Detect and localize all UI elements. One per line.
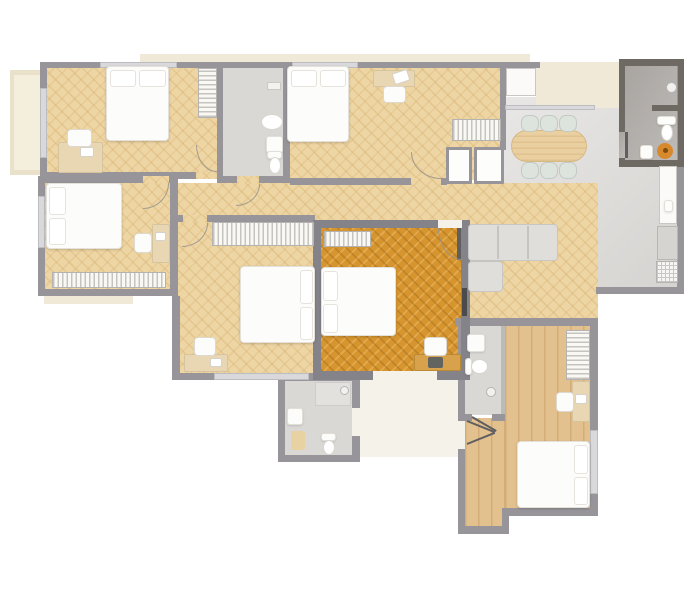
sofa-seam-3: [470, 260, 501, 262]
pillow-leftmiddle-1: [49, 187, 66, 215]
kitchen-sink: [664, 200, 673, 212]
kitchen-grate: [656, 261, 678, 283]
pillow-bottomright-2: [574, 477, 588, 505]
mat-bathbottom: [291, 431, 305, 450]
item-desk-leftmiddle: [155, 232, 166, 241]
wardrobe-highlighted: [324, 231, 371, 247]
door-gap-bath-topmiddle: [237, 176, 259, 183]
door-gap-centerleft-bedroom: [183, 215, 207, 222]
door-gap-bathbottom: [352, 408, 360, 436]
window-left-a: [40, 88, 47, 158]
wall-bathtr-partition: [652, 105, 678, 111]
sofa-seam-1: [497, 226, 499, 259]
paper-topleft: [80, 147, 94, 157]
door-gap-wing: [458, 421, 465, 449]
window-dark-highlighted: [462, 288, 467, 316]
window-right-wing: [590, 430, 598, 494]
kitchen-appliance: [657, 226, 678, 260]
pillow-highlighted-1: [323, 271, 338, 301]
toilet-bowl-ensuite: [471, 359, 488, 374]
window-kitchen-line: [505, 105, 595, 110]
wardrobe-bottomright: [566, 330, 590, 380]
wall-living-bottomright: [596, 287, 684, 294]
bedroom-bottomright-entry-floor: [465, 418, 505, 526]
hallway-floor: [356, 377, 462, 457]
dining-chair-2: [540, 115, 558, 132]
pillow-topleft-2: [139, 70, 166, 87]
pillow-centerleft-2: [300, 307, 313, 340]
chair-topmiddle: [383, 86, 406, 103]
pillow-centerleft-1: [300, 270, 313, 304]
door-gap-leftmiddle-bedroom: [143, 176, 169, 183]
pillow-leftmiddle-2: [49, 218, 66, 245]
sofa-chaise: [468, 261, 503, 292]
wall-bathtr-right: [678, 59, 684, 167]
item-desk-bottomright: [575, 394, 587, 404]
floorplan-canvas: [0, 0, 692, 600]
dining-chair-3: [559, 115, 577, 132]
desk-leftmiddle: [152, 224, 170, 263]
chair-highlighted: [424, 337, 447, 356]
door-leaf-bathtr: [625, 132, 628, 158]
laptop-highlighted: [428, 357, 443, 368]
dining-chair-4: [521, 162, 539, 179]
sofa-seam-2: [527, 226, 529, 259]
window-left-d: [38, 196, 45, 248]
shower-icon-ensuite: [486, 387, 496, 397]
closet-two: [474, 147, 504, 184]
pillow-highlighted-2: [323, 304, 338, 333]
floor-square-bathtr: [640, 145, 653, 159]
wall-wing-bottomright: [504, 508, 598, 516]
wall-ensuite-door-stub-right: [492, 414, 505, 421]
door-gap-topmiddle-bedroom: [411, 178, 441, 185]
wall-leftmiddle-right: [170, 176, 178, 296]
wall-wing-top: [455, 318, 598, 326]
chair-topleft: [67, 129, 92, 147]
wall-ensuite-door-stub-left: [458, 414, 472, 421]
shower-icon-bathtr: [666, 82, 677, 93]
pillow-topmiddle-2: [320, 70, 346, 87]
sink-bathbottom: [287, 408, 303, 425]
wardrobe-centerleft: [212, 222, 314, 246]
dining-chair-5: [540, 162, 558, 179]
toilet-bowl-bath-top: [269, 157, 281, 174]
wardrobe-topleft: [198, 68, 217, 118]
pillow-topleft-1: [110, 70, 136, 87]
shower-icon-bathbottom: [340, 386, 349, 395]
door-gap-topleft-bedroom: [196, 172, 217, 179]
window-bottom-e: [214, 373, 309, 380]
dining-chair-1: [521, 115, 539, 132]
wardrobe-topmiddle: [452, 119, 501, 141]
wall-centerleft-left: [172, 296, 180, 380]
stool-dot-bathtr: [663, 148, 668, 153]
door-gap-highlighted-top: [438, 220, 462, 228]
dining-chair-6: [559, 162, 577, 179]
entry-cream-strip: [536, 62, 622, 108]
wall-wing-bottomleft: [458, 526, 508, 534]
wardrobe-leftmiddle: [52, 272, 166, 288]
item-desk-centerleft: [210, 358, 222, 367]
wall-ensuite-right: [501, 326, 505, 418]
door-gap-highlighted-bottom: [373, 371, 437, 380]
balcony-left-floor: [14, 75, 42, 170]
pillow-topmiddle-1: [291, 70, 317, 87]
toilet-bowl-bathbottom: [323, 440, 335, 455]
sink-bath-top: [261, 114, 283, 130]
kitchen-counter: [659, 166, 677, 224]
balcony-bottomleft-strip: [44, 296, 133, 304]
wall-bedroom-bath-divider: [217, 62, 223, 178]
wall-wing-step: [502, 508, 509, 534]
fridge-box: [506, 68, 536, 96]
wall-leftmiddle-bottom: [38, 289, 178, 296]
pillow-bottomright-1: [574, 445, 588, 474]
chair-leftmiddle: [134, 233, 152, 253]
chair-centerleft: [194, 337, 216, 356]
closet-one: [446, 147, 472, 184]
toilet-bowl-bathtr: [661, 124, 673, 141]
wall-bathbottom-left: [278, 373, 285, 462]
chair-bottomright: [556, 392, 574, 412]
shelf-bath-top: [267, 82, 281, 90]
sofa-main: [468, 224, 558, 261]
wall-bathtr-top: [619, 59, 684, 66]
wall-bathbottom-bottom: [278, 455, 360, 462]
sink-ensuite: [467, 334, 485, 352]
dining-table: [511, 130, 587, 162]
